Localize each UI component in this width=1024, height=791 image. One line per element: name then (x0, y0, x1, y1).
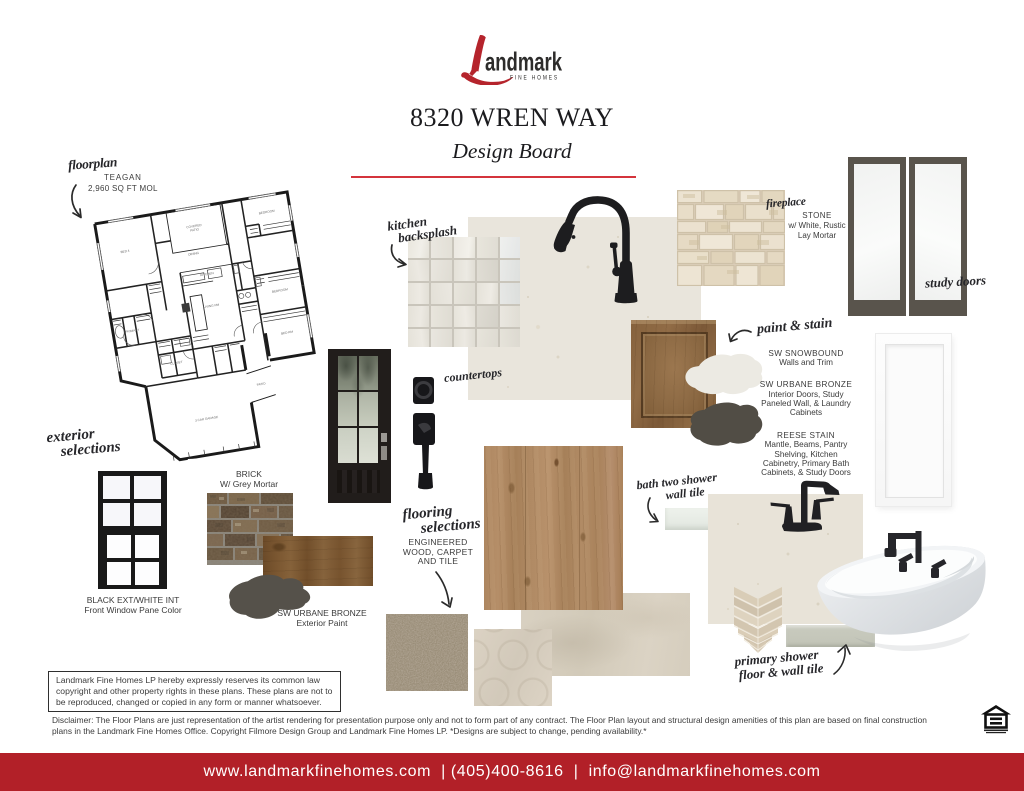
svg-text:PATIO: PATIO (256, 381, 266, 386)
svg-text:BEDROOM: BEDROOM (258, 209, 275, 216)
svg-text:LIVING RM: LIVING RM (203, 303, 220, 310)
svg-text:andmark: andmark (485, 47, 562, 77)
svg-text:BED RM: BED RM (281, 330, 294, 336)
svg-text:FINE HOMES: FINE HOMES (510, 75, 559, 82)
svg-text:KITCHEN: KITCHEN (200, 271, 214, 277)
svg-text:BEDROOM: BEDROOM (272, 287, 289, 294)
svg-text:DINING: DINING (188, 251, 200, 257)
svg-text:PRIMARY: PRIMARY (125, 328, 140, 334)
svg-text:BED 4: BED 4 (120, 249, 130, 254)
svg-text:3 CAR GARAGE: 3 CAR GARAGE (195, 415, 219, 423)
svg-text:PATIO: PATIO (190, 227, 200, 232)
